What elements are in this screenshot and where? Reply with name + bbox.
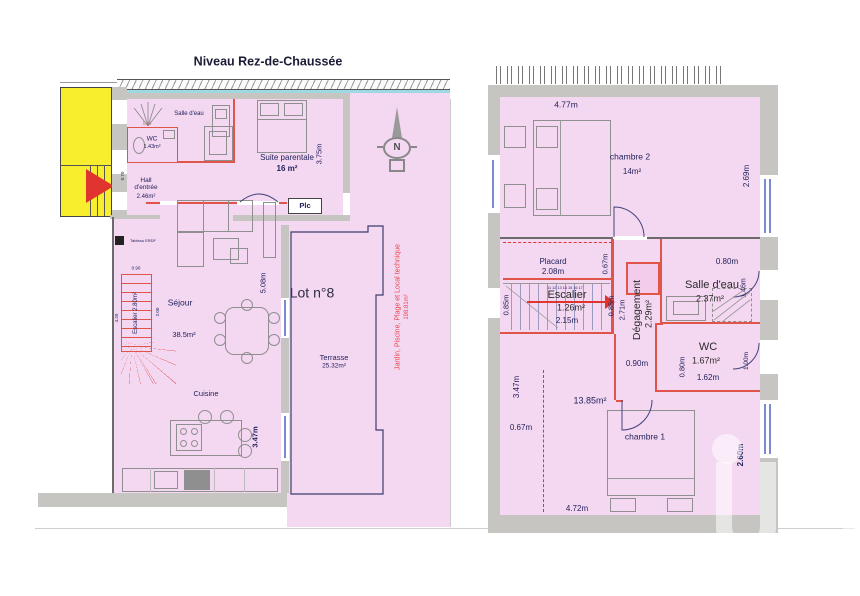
dim-347-right: 3.47m xyxy=(513,376,521,398)
watermark-bar xyxy=(843,450,858,593)
chambre1-nightstand-1 xyxy=(610,498,636,512)
entry-wall-gap-3 xyxy=(112,192,127,210)
wc-right-label: WC xyxy=(699,342,717,354)
sejour-label: Séjour xyxy=(168,299,193,308)
dim-100: 1.00m xyxy=(744,352,751,370)
stairs-east-partition xyxy=(611,239,614,334)
entry-arrow-icon xyxy=(86,169,114,203)
kitchen-sink xyxy=(154,471,178,489)
left-stairs-winder xyxy=(121,342,176,384)
hall-door-gap xyxy=(160,201,178,205)
suite-blanket-line xyxy=(257,119,307,120)
dining-table xyxy=(225,307,269,355)
burner-4 xyxy=(191,440,198,447)
dim-070: 0.70 xyxy=(121,172,126,181)
right-west-window-gap xyxy=(488,155,500,213)
dim-080-left: 0.80m xyxy=(678,357,686,378)
suite-label: Suite parentale xyxy=(260,154,314,162)
terrasse-label: Terrasse xyxy=(320,354,349,362)
dining-chair-6 xyxy=(241,352,253,364)
left-garden-bottom xyxy=(287,493,451,527)
compass-icon: N xyxy=(376,105,418,175)
watermark-u xyxy=(716,462,776,557)
wc-left-label: WC xyxy=(147,137,158,144)
dim-067-top: 0.67m xyxy=(601,254,609,275)
right-west-window xyxy=(492,160,494,208)
cooktop xyxy=(176,424,202,451)
dining-chair-5 xyxy=(241,299,253,311)
salledeau-right-label: Salle d'eau xyxy=(685,280,739,292)
salledeau-left-label: Salle d'eau xyxy=(174,111,204,117)
media-shelf xyxy=(263,202,276,258)
dim-146: 1.46m xyxy=(741,278,748,297)
right-hatch-ticks xyxy=(496,66,722,84)
dim-stairs-width: 0.90 xyxy=(132,267,141,272)
chambre2-window-b xyxy=(769,179,771,233)
watermark-curve xyxy=(775,548,830,593)
chambre2-area: 14m² xyxy=(623,168,641,176)
escalier-dim: 2.15m xyxy=(556,317,578,325)
wc-jut-partition xyxy=(655,323,663,325)
corridor-east-partition xyxy=(660,239,662,323)
dim-line-chambre2 xyxy=(503,242,612,244)
dim-085-right: 0.85m xyxy=(607,296,615,317)
chambre1-window-a xyxy=(764,404,766,454)
stair-step-numbers: 11 12 13 14 15 16 17 xyxy=(547,286,583,290)
placard-label: Placard xyxy=(539,258,566,266)
left-bottom-wall xyxy=(38,493,287,507)
suite-wardrobe-shelf xyxy=(215,109,227,119)
chambre1-north-partition xyxy=(500,332,614,334)
dim-085-left: 0.85m xyxy=(502,295,510,316)
stool-2 xyxy=(220,410,234,424)
chambre1-window-b xyxy=(769,404,771,454)
garden-area: 198.81m² xyxy=(404,294,410,319)
dim-sejour-height: 5.08m xyxy=(259,273,267,294)
counter-div-2 xyxy=(214,468,215,492)
salledeau-bottom-partition xyxy=(178,161,235,163)
sofa-cushion-line-1 xyxy=(203,200,204,232)
top-edge-line xyxy=(60,82,117,83)
compass-letter: N xyxy=(393,143,400,154)
salledeau-door-gap xyxy=(760,270,778,300)
burner-3 xyxy=(180,440,187,447)
dining-chair-2 xyxy=(214,334,226,346)
chambre2-bed-line xyxy=(560,120,561,216)
dim-wc-width: 1.43 xyxy=(143,122,152,127)
degagement-area: 2.29m² xyxy=(645,300,654,328)
shower-tray-inner xyxy=(209,131,227,155)
chambre2-pillow-1 xyxy=(536,126,558,148)
garden-label: Jardin, Piscine, Plage et Local techniqu… xyxy=(395,244,402,370)
sofa-cushion-line-2 xyxy=(228,200,229,232)
salledeau-south-partition xyxy=(662,322,760,324)
lot-number-label: Lot n°8 xyxy=(290,286,335,301)
dim-suite-height: 3.75m xyxy=(315,144,323,165)
wc-basin xyxy=(163,130,175,139)
wc-door-gap xyxy=(760,340,778,374)
dim-chambre2-height: 2.69m xyxy=(743,165,751,187)
tableau-label: Tableau ERDF xyxy=(130,239,156,243)
suite-area: 16 m² xyxy=(277,165,298,173)
dim-cuisine-height: 3.47m xyxy=(251,426,259,447)
sejour-window-2 xyxy=(284,416,286,458)
entry-wall-gap-1 xyxy=(112,100,127,124)
counter-div-3 xyxy=(244,468,245,492)
corridor-west-partition xyxy=(614,334,616,400)
sofa-back xyxy=(177,200,253,232)
watermark-dot xyxy=(712,434,742,464)
chambre1-label: chambre 1 xyxy=(625,433,665,442)
dim-472: 4.72m xyxy=(566,505,588,513)
cuisine-label: Cuisine xyxy=(193,390,218,398)
chambre1-nightstand-2 xyxy=(667,498,693,512)
chambre1-bed-line xyxy=(607,478,695,479)
terrasse-area: 25.32m² xyxy=(322,364,346,371)
placard-dim: 2.08m xyxy=(542,268,564,276)
dining-chair-4 xyxy=(268,334,280,346)
left-hatch-band xyxy=(117,79,450,90)
suite-west-partition xyxy=(233,99,235,162)
chambre2-nightstand-2 xyxy=(504,184,526,208)
chambre2-door-gap xyxy=(613,236,647,240)
right-west-gap-2 xyxy=(488,288,500,318)
degagement-label: Dégagement xyxy=(632,280,643,340)
chambre2-window-a xyxy=(764,179,766,233)
counter-div-1 xyxy=(150,468,151,492)
dim-chambre2-width: 4.77m xyxy=(554,101,578,110)
sejour-window-1 xyxy=(284,300,286,336)
corridor-south-partition xyxy=(616,400,623,402)
wc-south-partition xyxy=(655,390,760,392)
floorplan-canvas: Lot n°8 Terrasse 25.32m² Jardin, Piscine… xyxy=(0,0,860,596)
chambre2-label: chambre 2 xyxy=(610,153,650,162)
escalier-area: 1.26m² xyxy=(557,303,585,312)
dim-080-top: 0.80m xyxy=(716,258,738,266)
dim-162: 1.62m xyxy=(697,374,719,382)
hall-area: 2.46m² xyxy=(137,194,156,200)
suite-window-gap xyxy=(343,193,350,215)
right-top-wall xyxy=(488,85,778,97)
dim-line-chambre1 xyxy=(543,370,545,512)
page-title: Niveau Rez-de-Chaussée xyxy=(194,55,343,68)
suite-pillow-1 xyxy=(260,103,279,116)
chambre1-area: 13.85m² xyxy=(573,396,606,405)
dim-090: 0.90m xyxy=(626,360,648,368)
plc-label: Plc xyxy=(299,202,310,210)
wc-west-partition xyxy=(655,325,657,392)
hall-label: Hall d'entrée xyxy=(128,178,164,192)
salledeau-right-area: 2.37m² xyxy=(696,294,724,303)
chambre2-nightstand-1 xyxy=(504,126,526,148)
chambre2-pillow-2 xyxy=(536,188,558,210)
left-west-wall xyxy=(112,217,114,493)
left-stairs-label: Escalier 2.80m² xyxy=(133,292,139,334)
sejour-area: 38.5m² xyxy=(172,331,195,339)
dining-chair-1 xyxy=(214,312,226,324)
suite-pillow-2 xyxy=(284,103,303,116)
kitchen-appliance xyxy=(184,470,210,490)
dim-stairs-height: 2.00 xyxy=(156,308,161,317)
wc-right-area: 1.67m² xyxy=(692,356,720,365)
burner-1 xyxy=(180,428,187,435)
left-garden-top-sliver xyxy=(350,93,450,99)
placard-south-partition xyxy=(503,278,612,280)
dim-stairs-left: 4.20 xyxy=(115,314,120,323)
dim-067-left: 0.67m xyxy=(510,424,532,432)
sofa-chaise xyxy=(177,232,204,267)
electrical-panel-icon xyxy=(115,236,124,245)
coffee-table-2 xyxy=(230,248,248,264)
chambre1-bed xyxy=(607,410,695,496)
stool-1 xyxy=(198,410,212,424)
burner-2 xyxy=(191,428,198,435)
dim-271: 2.71m xyxy=(618,300,626,321)
left-step-wall xyxy=(110,215,160,219)
escalier-label: Escalier xyxy=(547,290,586,302)
dining-chair-3 xyxy=(268,312,280,324)
wc-left-area: 1.43m² xyxy=(143,145,160,151)
